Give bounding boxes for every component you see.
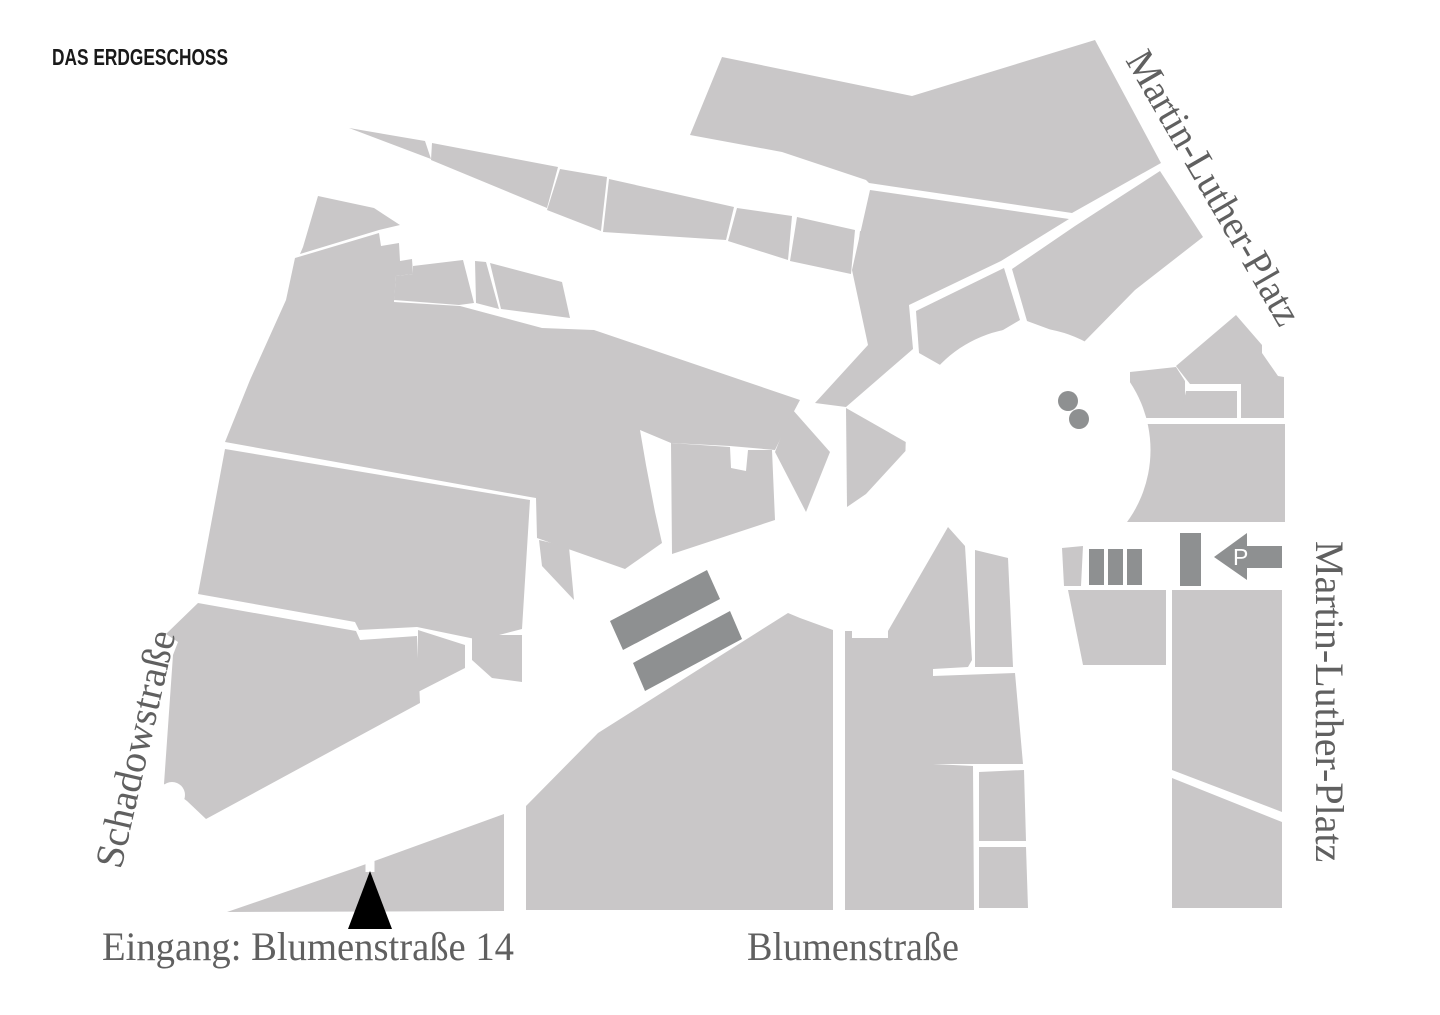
svg-text:Martin-Luther-Platz: Martin-Luther-Platz [1307,541,1352,862]
svg-text:Eingang: Blumenstraße 14: Eingang: Blumenstraße 14 [102,924,514,969]
svg-text:P: P [1233,544,1248,570]
svg-text:DAS ERDGESCHOSS: DAS ERDGESCHOSS [52,44,228,70]
svg-text:Blumenstraße: Blumenstraße [747,924,959,969]
